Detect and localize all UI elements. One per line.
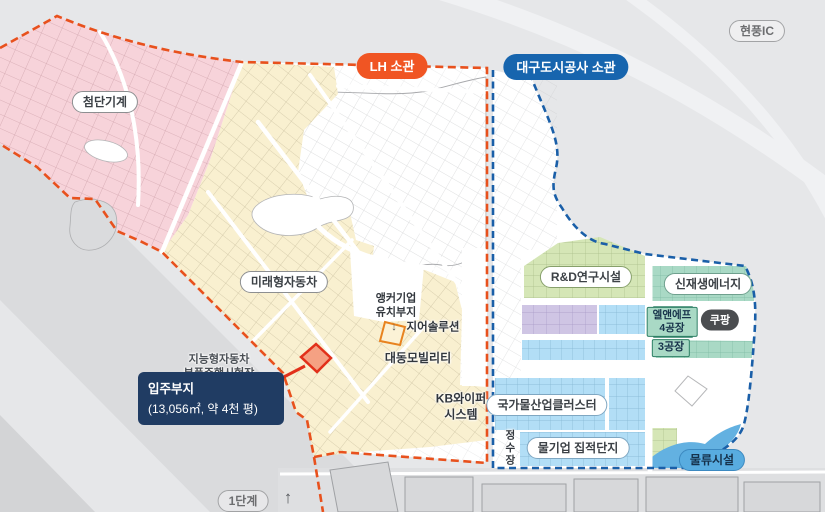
site-label-kb: KB와이퍼 시스템 bbox=[436, 391, 486, 422]
zone-label-future-auto: 미래형자동차 bbox=[240, 271, 328, 293]
highway-exit-badge: 현풍IC bbox=[729, 20, 785, 42]
site-label-gear: 지어솔루션 bbox=[407, 321, 460, 336]
blue-zone-a bbox=[599, 305, 645, 334]
site-label-plant3: 3공장 bbox=[652, 339, 690, 357]
dcc-jurisdiction-badge: 대구도시공사 소관 bbox=[503, 54, 628, 80]
site-label-lnf: 엘앤에프 4공장 bbox=[647, 307, 698, 337]
move-in-site-callout: 입주부지 (13,056㎡, 약 4천 평) bbox=[138, 372, 284, 425]
zone-label-water-complex: 물기업 집적단지 bbox=[527, 437, 630, 459]
down-arrow-icon: ↓ bbox=[391, 321, 397, 333]
industrial-complex-map: 현풍IC LH 소관 대구도시공사 소관 첨단기계 미래형자동차 R&D연구시설… bbox=[0, 0, 825, 512]
lh-jurisdiction-badge: LH 소관 bbox=[357, 53, 428, 79]
site-label-daedong: 대동모빌리티 bbox=[385, 351, 451, 367]
stage1-complex-buildings bbox=[278, 462, 825, 512]
site-label-anchor: 앵커기업 유치부지 bbox=[376, 292, 416, 321]
zone-label-advanced-machinery: 첨단기계 bbox=[72, 91, 138, 113]
callout-title: 입주부지 bbox=[148, 378, 274, 397]
site-label-coupang: 쿠팡 bbox=[701, 310, 739, 331]
purple-zone bbox=[522, 305, 597, 334]
zone-label-renewable: 신재생에너지 bbox=[664, 273, 752, 295]
up-arrow-icon: ↑ bbox=[284, 488, 293, 508]
blue-zone-b bbox=[522, 340, 645, 360]
stage1-label: 1단계 bbox=[218, 490, 269, 512]
callout-area: (13,056㎡, 약 4천 평) bbox=[148, 400, 274, 417]
zone-label-water-cluster: 국가물산업클러스터 bbox=[486, 394, 607, 416]
zone-label-logistics: 물류시설 bbox=[679, 449, 745, 471]
zone-label-rnd: R&D연구시설 bbox=[540, 266, 632, 288]
zone-label-water-plant: 정수장 bbox=[502, 429, 516, 467]
